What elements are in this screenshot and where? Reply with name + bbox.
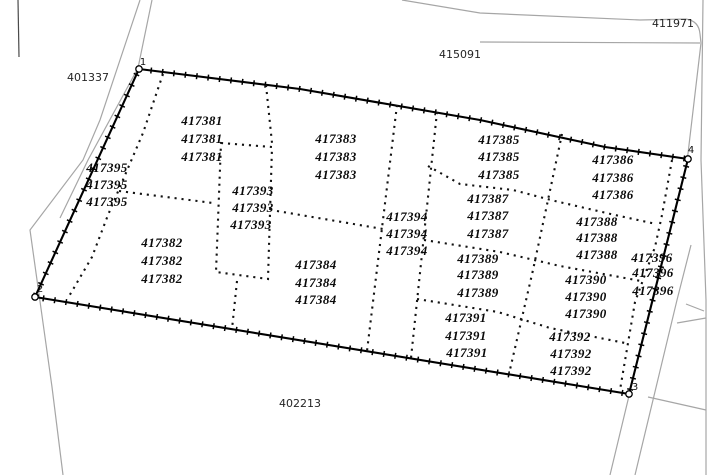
parcel-label-417383: 417383 — [314, 149, 356, 164]
parcel-label-417390: 417390 — [564, 289, 607, 304]
parcel-label-417387: 417387 — [466, 208, 508, 223]
parcel-label-417390: 417390 — [564, 272, 607, 287]
parcel-label-417391: 417391 — [444, 328, 486, 343]
division-horizontal-left-b — [277, 211, 383, 229]
corner-number-3: 3 — [632, 382, 638, 393]
parcel-label-417394: 417394 — [385, 226, 427, 241]
parcel-label-417396: 417396 — [631, 265, 674, 280]
parcel-label-417391: 417391 — [444, 310, 486, 325]
parcel-label-417389: 417389 — [456, 267, 498, 282]
parcel-label-417395: 417395 — [85, 194, 127, 209]
boundary-segment-top-left — [18, 0, 19, 57]
parcel-label-417392: 417392 — [548, 329, 591, 344]
parcel-label-417382: 417382 — [140, 235, 182, 250]
corner-marker-4 — [685, 156, 691, 162]
adjacent-parcel-label-402213: 402213 — [279, 397, 321, 410]
parcel-label-417390: 417390 — [564, 306, 607, 321]
division-horizontal-left-a — [119, 191, 213, 203]
road-top-lower-edge — [480, 42, 700, 43]
corner-number-2: 2 — [37, 284, 43, 295]
parcel-label-417384: 417384 — [294, 257, 336, 272]
parcel-label-417385: 417385 — [477, 149, 520, 164]
road-right-connector-lower — [648, 397, 706, 410]
parcel-label-417394: 417394 — [385, 243, 427, 258]
parcel-label-417385: 417385 — [477, 167, 520, 182]
parcel-label-417386: 417386 — [591, 187, 634, 202]
parcel-label-417385: 417385 — [477, 132, 520, 147]
parcel-label-417395: 417395 — [85, 177, 127, 192]
road-right-connector-upper — [677, 318, 706, 323]
parcel-label-417396: 417396 — [631, 283, 674, 298]
parcel-label-417384: 417384 — [294, 292, 336, 307]
parcel-label-417393: 417393 — [231, 183, 273, 198]
parcel-label-417386: 417386 — [591, 170, 634, 185]
corner-number-4: 4 — [688, 145, 694, 156]
adjacent-parcel-label-401337: 401337 — [67, 71, 109, 84]
parcel-label-417394: 417394 — [385, 209, 427, 224]
parcel-label-417381: 417381 — [180, 131, 222, 146]
parcel-label-417381: 417381 — [180, 113, 222, 128]
parcel-label-417384: 417384 — [294, 275, 336, 290]
parcel-label-417392: 417392 — [549, 363, 592, 378]
parcel-label-417383: 417383 — [314, 167, 356, 182]
adjacent-parcel-label-415091: 415091 — [439, 48, 481, 61]
parcel-label-417392: 417392 — [549, 346, 592, 361]
parcel-label-417386: 417386 — [591, 152, 634, 167]
cadastral-map: 1 2 3 4 401337 415091 411971 402213 4173… — [0, 0, 720, 475]
parcel-label-417387: 417387 — [466, 226, 508, 241]
parcel-label-417393: 417393 — [231, 200, 273, 215]
parcel-label-417389: 417389 — [456, 285, 498, 300]
parcel-label-417388: 417388 — [575, 230, 618, 245]
parcel-label-417393: 417393 — [229, 217, 271, 232]
division-vertical-417381-417383 — [266, 85, 272, 143]
parcel-label-417387: 417387 — [466, 191, 508, 206]
parcel-label-417391: 417391 — [445, 345, 487, 360]
corner-number-1: 1 — [140, 57, 146, 68]
parcel-label-417388: 417388 — [575, 247, 618, 262]
parcel-label-417395: 417395 — [85, 160, 127, 175]
parcel-label-417381: 417381 — [180, 149, 222, 164]
division-vertical-below-box — [232, 281, 237, 329]
parcel-label-417382: 417382 — [140, 271, 182, 286]
parcel-label-417389: 417389 — [456, 251, 498, 266]
parcel-label-417388: 417388 — [575, 214, 618, 229]
parcel-label-417383: 417383 — [314, 131, 356, 146]
adjacent-parcel-label-411971: 411971 — [652, 17, 694, 30]
parcel-label-417396: 417396 — [630, 250, 673, 265]
parcel-label-417382: 417382 — [140, 253, 182, 268]
cadastral-map-canvas: 1 2 3 4 401337 415091 411971 402213 4173… — [0, 0, 720, 475]
road-right-connector-top — [686, 304, 704, 311]
road-right-vertical-edge — [701, 0, 706, 475]
